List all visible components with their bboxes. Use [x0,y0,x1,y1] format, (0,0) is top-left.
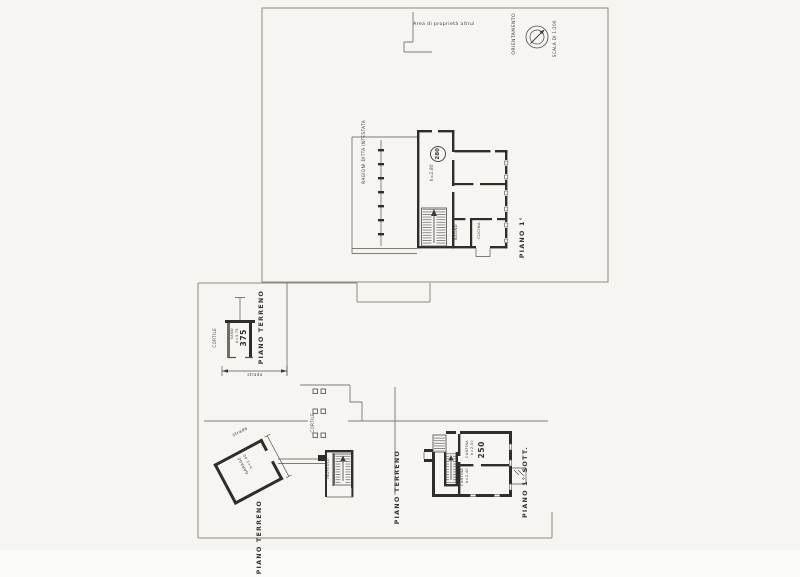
basement-label: PIANO 1° SOTT. [522,446,529,502]
cantina-upper-number: 250 [478,441,487,466]
cantina-lower-label: CANTINA h=2.40 [461,468,470,494]
floor1-linework [352,12,508,257]
boundary-note: Area di proprietà altrui [406,22,482,27]
ground-label-courtyard: PIANO TERRENO [394,450,401,500]
dimension-note: strada [236,373,274,378]
compass-icon [526,26,548,48]
room-number-circled: 280 [430,146,446,162]
cucina-label: CUCINA [477,222,481,246]
owner-note: RAGIONI DITTA INTESTATA [362,120,367,188]
room-height: h=2.80 [430,164,435,186]
sheet-frames [198,8,608,538]
cantina-upper-label: CANTINA h=2.50 [466,440,475,466]
cortile-main-label: CORTILE [311,413,316,439]
scale-label: SCALA DI 1:200 [553,20,558,62]
ground-label-shed: PIANO TERRENO [258,290,265,338]
ground-label-street: PIANO TERRENO [256,500,263,550]
cortile-shed-label: CORTILE [213,328,218,354]
bagno-label: BAGNO [454,224,458,246]
basement-linework [424,431,526,497]
floorplan-document: Area di proprietà altrui ORIENTAMENTO SC… [0,0,800,550]
floor1-label: PIANO 1° [519,216,526,254]
shed-number: 375 [240,329,249,356]
orientamento-label: ORIENTAMENTO [512,13,517,67]
ingresso-label: INGRESSO [327,458,331,486]
